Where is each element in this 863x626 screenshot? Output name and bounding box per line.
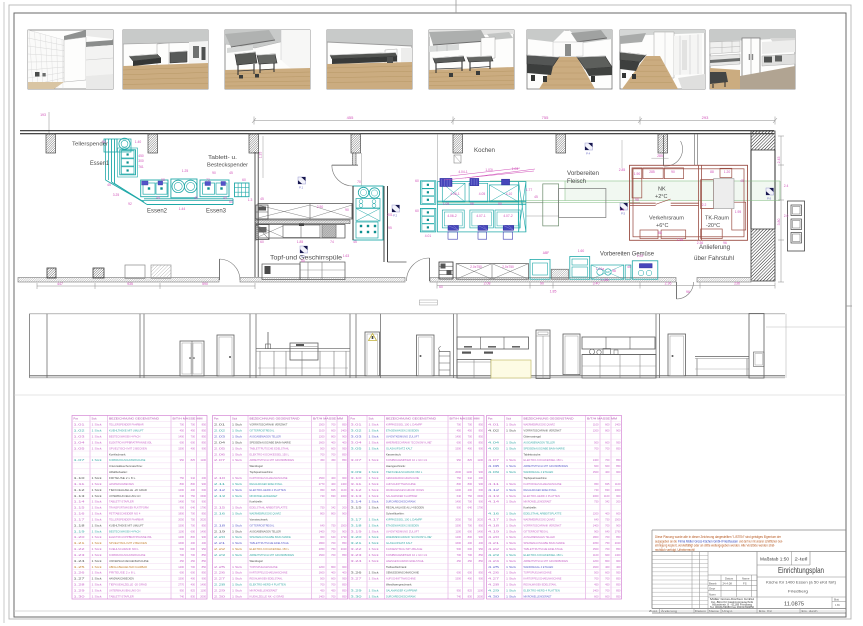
svg-text:400: 400 [605, 512, 610, 516]
svg-text:4.05: 4.05 [479, 192, 486, 196]
svg-text:+2°C: +2°C [655, 194, 667, 200]
svg-text:1 Stck: 1 Stck [506, 470, 517, 474]
svg-text:600: 600 [479, 488, 484, 492]
svg-text:1 Stck: 1 Stck [92, 488, 103, 492]
svg-text:825: 825 [191, 458, 196, 462]
svg-text:1 Stck: 1 Stck [506, 523, 517, 527]
svg-text:Tablettrutsche:: Tablettrutsche: [524, 452, 542, 456]
svg-text:ELEKTRO-KOCHKESSEL 150 L: ELEKTRO-KOCHKESSEL 150 L [250, 547, 290, 551]
svg-text:400: 400 [331, 482, 336, 486]
svg-text:1800: 1800 [319, 541, 325, 545]
svg-text:600: 600 [180, 571, 185, 575]
svg-text:1.03: 1.03 [512, 167, 519, 171]
svg-text:2.05: 2.05 [214, 446, 226, 450]
svg-text:1400: 1400 [593, 588, 599, 592]
svg-text:700: 700 [331, 423, 336, 427]
svg-text:KUEHLSCHRANK 660 L: KUEHLSCHRANK 660 L [109, 547, 139, 551]
svg-text:825: 825 [605, 482, 610, 486]
svg-text:640: 640 [468, 506, 473, 510]
svg-text:700: 700 [320, 583, 325, 587]
svg-text:700: 700 [191, 553, 196, 557]
svg-text:2020: 2020 [615, 541, 621, 545]
svg-text:90: 90 [540, 282, 544, 286]
svg-text:Wandregal:: Wandregal: [250, 559, 264, 563]
svg-text:1 Stck: 1 Stck [506, 440, 517, 444]
svg-text:ELEKTRO-HERD 4 PLATTEN: ELEKTRO-HERD 4 PLATTEN [250, 583, 286, 587]
svg-text:2050: 2050 [319, 547, 325, 551]
svg-text:850: 850 [616, 577, 621, 581]
svg-text:200: 200 [479, 476, 484, 480]
svg-text:740: 740 [594, 488, 599, 492]
svg-text:REGALWAGEN EDELSTAHL: REGALWAGEN EDELSTAHL [250, 577, 284, 581]
svg-text:850: 850 [479, 553, 484, 557]
svg-text:SPUELTISCH MIT 2 BECKEN: SPUELTISCH MIT 2 BECKEN [109, 541, 147, 545]
svg-text:1400: 1400 [341, 482, 347, 486]
svg-text:90: 90 [345, 208, 349, 212]
svg-text:900: 900 [202, 535, 207, 539]
svg-text:450: 450 [180, 559, 185, 563]
svg-text:1 Stck: 1 Stck [369, 482, 380, 486]
svg-text:VORRATSSCHRANK VERZINKT: VORRATSSCHRANK VERZINKT [250, 423, 288, 427]
svg-text:KORBDURCHSCHUBMASCHINE: KORBDURCHSCHUBMASCHINE [109, 553, 146, 557]
svg-text:AUSGABEWAGEN TELLER: AUSGABEWAGEN TELLER [524, 535, 555, 539]
svg-text:Gepr: Gepr [709, 587, 715, 591]
svg-text:P.4: P.4 [586, 152, 590, 156]
svg-text:2050: 2050 [455, 517, 461, 521]
svg-text:4.23: 4.23 [488, 553, 500, 557]
svg-text:Pos: Pos [488, 417, 493, 421]
svg-text:1 Stck: 1 Stck [232, 512, 243, 516]
svg-text:1 Stck: 1 Stck [506, 429, 517, 433]
svg-text:1 Stck: 1 Stck [92, 529, 103, 533]
svg-text:WAERMEBRUECKE QUARZ: WAERMEBRUECKE QUARZ [250, 512, 282, 516]
svg-text:850: 850 [202, 559, 207, 563]
svg-text:400: 400 [468, 488, 473, 492]
svg-text:1500: 1500 [200, 494, 206, 498]
svg-text:450: 450 [320, 458, 325, 462]
svg-text:2050: 2050 [178, 517, 184, 521]
svg-text:400: 400 [479, 541, 484, 545]
svg-text:1.25: 1.25 [74, 565, 86, 569]
svg-text:400: 400 [191, 541, 196, 545]
svg-text:1.26: 1.26 [74, 571, 86, 575]
svg-text:935: 935 [127, 282, 133, 286]
svg-text:DURCHREICHESCHRANK: DURCHREICHESCHRANK [386, 594, 416, 598]
svg-text:2000: 2000 [200, 594, 206, 598]
svg-text:700: 700 [468, 553, 473, 557]
svg-text:850: 850 [342, 553, 347, 557]
svg-text:1.28: 1.28 [74, 583, 86, 587]
svg-text:1 Stck: 1 Stck [232, 494, 243, 498]
svg-text:1 Stck: 1 Stck [369, 506, 380, 510]
svg-text:KUEHLTHEKE MIT UMLUFT: KUEHLTHEKE MIT UMLUFT [109, 523, 144, 527]
svg-text:UNIVERSALKUECHENMASCHINE: UNIVERSALKUECHENMASCHINE [109, 559, 149, 563]
svg-text:700: 700 [594, 446, 599, 450]
svg-text:850: 850 [202, 440, 207, 444]
svg-text:Ers. durch: Ers. durch [802, 609, 819, 613]
svg-text:400: 400 [468, 577, 473, 581]
svg-text:450: 450 [191, 559, 196, 563]
svg-text:761: 761 [138, 165, 144, 169]
svg-text:400: 400 [331, 476, 336, 480]
svg-text:1 Stck: 1 Stck [506, 559, 517, 563]
svg-text:900: 900 [616, 523, 621, 527]
svg-text:750: 750 [457, 476, 462, 480]
svg-text:800: 800 [191, 482, 196, 486]
svg-text:Blatt: Blatt [834, 598, 839, 601]
svg-text:1.68b: 1.68b [601, 278, 609, 282]
svg-text:1200: 1200 [455, 535, 461, 539]
svg-text:3.11: 3.11 [351, 482, 363, 486]
svg-text:850: 850 [202, 435, 207, 439]
svg-text:1800: 1800 [178, 512, 184, 516]
svg-text:Vorratsschrank:: Vorratsschrank: [250, 517, 269, 521]
svg-text:4.20: 4.20 [488, 535, 500, 539]
svg-text:2.22: 2.22 [214, 547, 226, 551]
svg-text:WANDREGAL 4 ETAGEN: WANDREGAL 4 ETAGEN [524, 470, 554, 474]
svg-text:342: 342 [331, 506, 336, 510]
svg-text:88: 88 [301, 259, 305, 263]
svg-text:TELLERSPENDER FAHRBAR: TELLERSPENDER FAHRBAR [109, 423, 144, 427]
svg-text:900: 900 [594, 529, 599, 533]
svg-text:600: 600 [191, 440, 196, 444]
svg-text:1 Stck: 1 Stck [369, 571, 380, 575]
svg-text:SALAMANDER KLAPPBAR: SALAMANDER KLAPPBAR [386, 588, 417, 592]
svg-text:850: 850 [616, 458, 621, 462]
svg-text:2.30: 2.30 [214, 594, 226, 598]
svg-text:1 Stck: 1 Stck [232, 452, 243, 456]
svg-text:450: 450 [138, 154, 144, 158]
svg-text:900: 900 [202, 482, 207, 486]
svg-text:236: 236 [734, 282, 740, 286]
svg-text:1500: 1500 [477, 494, 483, 498]
svg-text:4.18: 4.18 [488, 523, 500, 527]
svg-text:4.27: 4.27 [488, 577, 500, 581]
svg-text:1 Stck: 1 Stck [506, 512, 517, 516]
svg-text:2.10: 2.10 [214, 476, 226, 480]
svg-text:700: 700 [320, 452, 325, 456]
svg-text:B/T/H MASSE MM: B/T/H MASSE MM [587, 417, 617, 421]
svg-text:4.05: 4.05 [488, 446, 500, 450]
svg-text:2770: 2770 [319, 482, 325, 486]
svg-text:1 Bl.: 1 Bl. [835, 603, 840, 607]
svg-text:1 Stck: 1 Stck [92, 476, 103, 480]
svg-text:3.80: 3.80 [777, 219, 781, 226]
svg-text:700: 700 [457, 423, 462, 427]
svg-text:850: 850 [616, 547, 621, 551]
svg-text:4.02: 4.02 [488, 429, 500, 433]
svg-text:Bearb: Bearb [709, 582, 717, 586]
svg-text:600: 600 [468, 440, 473, 444]
svg-text:ABFALLBEHAELTER FAHRBAR: ABFALLBEHAELTER FAHRBAR [109, 565, 147, 569]
svg-text:850: 850 [342, 541, 347, 545]
svg-text:3.23: 3.23 [351, 553, 363, 557]
svg-text:830: 830 [331, 494, 336, 498]
svg-text:600: 600 [468, 529, 473, 533]
svg-text:2.21: 2.21 [214, 541, 226, 545]
svg-text:825: 825 [468, 458, 473, 462]
svg-text:700: 700 [191, 423, 196, 427]
svg-text:1 Stck: 1 Stck [506, 594, 517, 598]
svg-text:1100: 1100 [477, 588, 483, 592]
svg-text:950: 950 [180, 458, 185, 462]
svg-text:1600: 1600 [178, 541, 184, 545]
svg-text:88: 88 [710, 170, 714, 174]
svg-text:1.22: 1.22 [74, 547, 86, 551]
svg-text:Gitterrostregal:: Gitterrostregal: [524, 435, 542, 439]
svg-text:800: 800 [331, 512, 336, 516]
svg-text:1400: 1400 [593, 523, 599, 527]
svg-text:1 Stck: 1 Stck [369, 429, 380, 433]
svg-text:900: 900 [202, 577, 207, 581]
svg-text:Tablett- u.: Tablett- u. [208, 155, 237, 161]
svg-text:450: 450 [457, 559, 462, 563]
svg-text:1 Stck: 1 Stck [232, 529, 243, 533]
svg-text:4.29: 4.29 [488, 588, 500, 592]
svg-text:500: 500 [320, 577, 325, 581]
svg-text:1500: 1500 [455, 523, 461, 527]
svg-text:WAERMEBRUECKE QUARZ: WAERMEBRUECKE QUARZ [524, 423, 556, 427]
svg-text:90: 90 [212, 171, 216, 175]
svg-text:1.95: 1.95 [735, 210, 742, 214]
svg-text:1.9: 1.9 [620, 208, 625, 212]
svg-text:750: 750 [191, 494, 196, 498]
svg-text:KARTOFFELSCHAELMASCHINE: KARTOFFELSCHAELMASCHINE [250, 571, 288, 575]
svg-text:1 Stck: 1 Stck [506, 482, 517, 486]
svg-text:BEZEICHNUNG GEGENSTAND: BEZEICHNUNG GEGENSTAND [250, 417, 300, 421]
svg-text:850: 850 [479, 571, 484, 575]
svg-text:ELEKTRO-KIPPBRATPFANNE 80L: ELEKTRO-KIPPBRATPFANNE 80L [109, 440, 152, 444]
svg-text:640: 640 [320, 523, 325, 527]
svg-text:45: 45 [194, 196, 198, 200]
svg-text:700: 700 [331, 553, 336, 557]
svg-text:1400: 1400 [615, 553, 621, 557]
svg-text:1 Stck: 1 Stck [369, 423, 380, 427]
svg-text:70: 70 [357, 180, 361, 184]
svg-text:600: 600 [180, 440, 185, 444]
svg-text:800: 800 [605, 429, 610, 433]
svg-text:590: 590 [202, 282, 208, 286]
svg-text:Verkehrsraum: Verkehrsraum [649, 216, 684, 222]
svg-text:1 Stck: 1 Stck [232, 435, 243, 439]
svg-text:2.06: 2.06 [214, 452, 226, 456]
svg-text:1 Stck: 1 Stck [232, 446, 243, 450]
svg-text:3.01: 3.01 [351, 423, 363, 427]
svg-text:1100: 1100 [593, 553, 599, 557]
svg-text:Pos: Pos [214, 417, 219, 421]
svg-text:830: 830 [191, 594, 196, 598]
svg-text:Stck: Stck [232, 417, 238, 421]
svg-text:ARBEITSTISCH MIT GRUNDBODEN: ARBEITSTISCH MIT GRUNDBODEN [524, 559, 569, 563]
svg-text:1600: 1600 [593, 565, 599, 569]
svg-text:60: 60 [439, 285, 443, 289]
svg-text:1 Stck: 1 Stck [506, 547, 517, 551]
svg-text:450: 450 [468, 429, 473, 433]
svg-text:800: 800 [468, 535, 473, 539]
svg-text:1500: 1500 [593, 470, 599, 474]
svg-text:1 Stck: 1 Stck [369, 517, 380, 521]
svg-text:4.30: 4.30 [488, 594, 500, 598]
svg-text:4.28: 4.28 [488, 583, 500, 587]
svg-text:UV-ENTKEIMUNG ZULUFT: UV-ENTKEIMUNG ZULUFT [386, 529, 419, 533]
svg-text:4.07: 4.07 [488, 458, 500, 462]
svg-text:600: 600 [605, 571, 610, 575]
svg-text:600: 600 [191, 547, 196, 551]
svg-text:3.29: 3.29 [351, 588, 363, 592]
svg-text:1.63: 1.63 [343, 254, 350, 258]
svg-text:285: 285 [649, 170, 655, 174]
svg-text:1.3: 1.3 [248, 198, 253, 202]
svg-text:850: 850 [342, 588, 347, 592]
svg-text:1.11: 1.11 [74, 482, 86, 486]
svg-text:640: 640 [594, 517, 599, 521]
svg-text:900: 900 [479, 482, 484, 486]
svg-text:600: 600 [605, 594, 610, 598]
svg-text:1.01: 1.01 [74, 423, 86, 427]
svg-text:HAENGESCHRANK EDELSTAHL: HAENGESCHRANK EDELSTAHL [386, 559, 424, 563]
svg-text:4.21: 4.21 [488, 541, 500, 545]
svg-text:900: 900 [342, 529, 347, 533]
svg-text:3.13: 3.13 [351, 494, 363, 498]
svg-text:TABLETTRUTSCHE EDELSTAHL: TABLETTRUTSCHE EDELSTAHL [250, 446, 290, 450]
svg-text:BESTECKWAGEN 4-FACH: BESTECKWAGEN 4-FACH [109, 529, 140, 533]
svg-text:1500: 1500 [455, 577, 461, 581]
svg-text:825: 825 [468, 588, 473, 592]
svg-text:GLASAUFSATZ KALT: GLASAUFSATZ KALT [386, 541, 413, 545]
svg-text:Datum: Datum [695, 609, 707, 613]
svg-text:1.10: 1.10 [74, 476, 86, 480]
svg-text:BESTECKWAGEN 4-FACH: BESTECKWAGEN 4-FACH [109, 435, 140, 439]
svg-text:2.0x750: 2.0x750 [470, 265, 482, 269]
svg-text:447: 447 [57, 282, 63, 286]
svg-text:95: 95 [470, 202, 474, 206]
svg-text:4.26: 4.26 [488, 571, 500, 575]
svg-text:900: 900 [479, 500, 484, 504]
svg-text:1 Stck: 1 Stck [92, 494, 103, 498]
svg-text:1 Stck: 1 Stck [506, 588, 517, 592]
svg-text:1 Stck: 1 Stck [506, 565, 517, 569]
svg-text:1.04: 1.04 [74, 440, 86, 444]
svg-text:850: 850 [616, 535, 621, 539]
svg-text:90: 90 [498, 202, 502, 206]
svg-text:1100: 1100 [319, 429, 325, 433]
svg-text:3.04: 3.04 [351, 440, 363, 444]
svg-text:3.02: 3.02 [351, 429, 363, 433]
svg-text:WAERMESCHRANK "ECONOMY-LINE": WAERMESCHRANK "ECONOMY-LINE" [386, 535, 432, 539]
svg-text:1 Stck: 1 Stck [232, 553, 243, 557]
svg-text:400: 400 [202, 541, 207, 545]
svg-text:700: 700 [605, 547, 610, 551]
svg-text:2.27: 2.27 [214, 577, 226, 581]
svg-text:Essen1: Essen1 [90, 161, 110, 167]
svg-text:700: 700 [605, 577, 610, 581]
svg-text:Kassentisch:: Kassentisch: [386, 452, 401, 456]
svg-text:740: 740 [457, 594, 462, 598]
svg-text:KARTOFFELSCHAELMASCHINE: KARTOFFELSCHAELMASCHINE [250, 476, 288, 480]
svg-text:700: 700 [468, 423, 473, 427]
svg-text:REGALWAGEN EDELSTAHL: REGALWAGEN EDELSTAHL [524, 583, 558, 587]
svg-text:400: 400 [616, 565, 621, 569]
svg-text:ETAGENWAGEN 2 BOEDEN: ETAGENWAGEN 2 BOEDEN [386, 523, 419, 527]
svg-text:1 Stck: 1 Stck [232, 458, 243, 462]
svg-text:MIKROWELLENGERAET: MIKROWELLENGERAET [524, 594, 552, 598]
svg-text:TRANSPORTWAGEN PLATTFORM: TRANSPORTWAGEN PLATTFORM [109, 506, 149, 510]
svg-text:1 Stck: 1 Stck [369, 458, 380, 462]
svg-text:B/T/H MASSE MM: B/T/H MASSE MM [450, 417, 480, 421]
svg-text:SPEISENAUSGABE BAIN-MARIE: SPEISENAUSGABE BAIN-MARIE [524, 446, 566, 450]
svg-text:2000: 2000 [593, 494, 599, 498]
svg-text:300: 300 [138, 159, 144, 163]
svg-text:1100: 1100 [477, 458, 483, 462]
svg-text:1.18: 1.18 [74, 523, 86, 527]
svg-text:Friedberg: Friedberg [788, 589, 808, 594]
svg-text:1500: 1500 [593, 547, 599, 551]
svg-text:1 Stck: 1 Stck [369, 553, 380, 557]
svg-text:1 Stck: 1 Stck [232, 476, 243, 480]
svg-text:1 Stck: 1 Stck [92, 440, 103, 444]
svg-text:600: 600 [605, 464, 610, 468]
svg-text:1 Stck: 1 Stck [506, 458, 517, 462]
svg-text:ELEKTRO-HERD 4 PLATTEN: ELEKTRO-HERD 4 PLATTEN [250, 488, 286, 492]
svg-text:Pos: Pos [351, 417, 356, 421]
svg-text:1 Stck: 1 Stck [92, 588, 103, 592]
svg-text:Wandregal:: Wandregal: [250, 464, 264, 468]
svg-text:Urspr.: Urspr. [722, 609, 733, 613]
svg-text:B/T/H MASSE MM: B/T/H MASSE MM [313, 417, 343, 421]
svg-text:600: 600 [457, 571, 462, 575]
svg-text:1.44: 1.44 [179, 207, 186, 211]
svg-text:1.27: 1.27 [74, 577, 86, 581]
svg-text:2.0: 2.0 [784, 214, 789, 218]
svg-text:1.77: 1.77 [526, 188, 533, 192]
svg-text:2.4: 2.4 [784, 184, 789, 188]
svg-text:98: 98 [161, 178, 165, 182]
svg-text:AUSGABEWAGEN TELLER: AUSGABEWAGEN TELLER [250, 435, 281, 439]
svg-text:4.24: 4.24 [488, 559, 500, 563]
svg-text:1.03i: 1.03i [485, 168, 492, 172]
svg-text:800: 800 [605, 559, 610, 563]
svg-text:1 Stck: 1 Stck [506, 488, 517, 492]
svg-text:640: 640 [331, 535, 336, 539]
svg-text:3.20: 3.20 [351, 535, 363, 539]
svg-text:2.11: 2.11 [214, 482, 226, 486]
svg-text:1100: 1100 [178, 529, 184, 533]
svg-text:850: 850 [202, 423, 207, 427]
svg-text:1.85: 1.85 [550, 290, 557, 294]
svg-text:1 Stck: 1 Stck [369, 529, 380, 533]
svg-text:900: 900 [457, 506, 462, 510]
svg-text:600: 600 [594, 464, 599, 468]
svg-text:Name: Name [709, 609, 720, 613]
svg-text:1100: 1100 [200, 588, 206, 592]
svg-text:1 Stck: 1 Stck [369, 559, 380, 563]
svg-text:950: 950 [320, 488, 325, 492]
svg-text:1 Stck: 1 Stck [92, 429, 103, 433]
svg-text:FETTABSCHEIDER NG 4: FETTABSCHEIDER NG 4 [109, 512, 141, 516]
svg-text:1.25: 1.25 [182, 169, 189, 173]
svg-text:850: 850 [202, 553, 207, 557]
svg-text:450: 450 [605, 583, 610, 587]
svg-text:1500: 1500 [178, 523, 184, 527]
svg-text:1790: 1790 [341, 535, 347, 539]
svg-text:450: 450 [180, 429, 185, 433]
svg-text:VORRATSSCHRANK VERZINKT: VORRATSSCHRANK VERZINKT [524, 429, 562, 433]
svg-text:900: 900 [202, 446, 207, 450]
svg-text:1200: 1200 [593, 559, 599, 563]
svg-text:193: 193 [40, 113, 46, 117]
svg-text:1400: 1400 [200, 583, 206, 587]
svg-text:ELEKTRO-HERD 4 PLATTEN: ELEKTRO-HERD 4 PLATTEN [524, 494, 560, 498]
